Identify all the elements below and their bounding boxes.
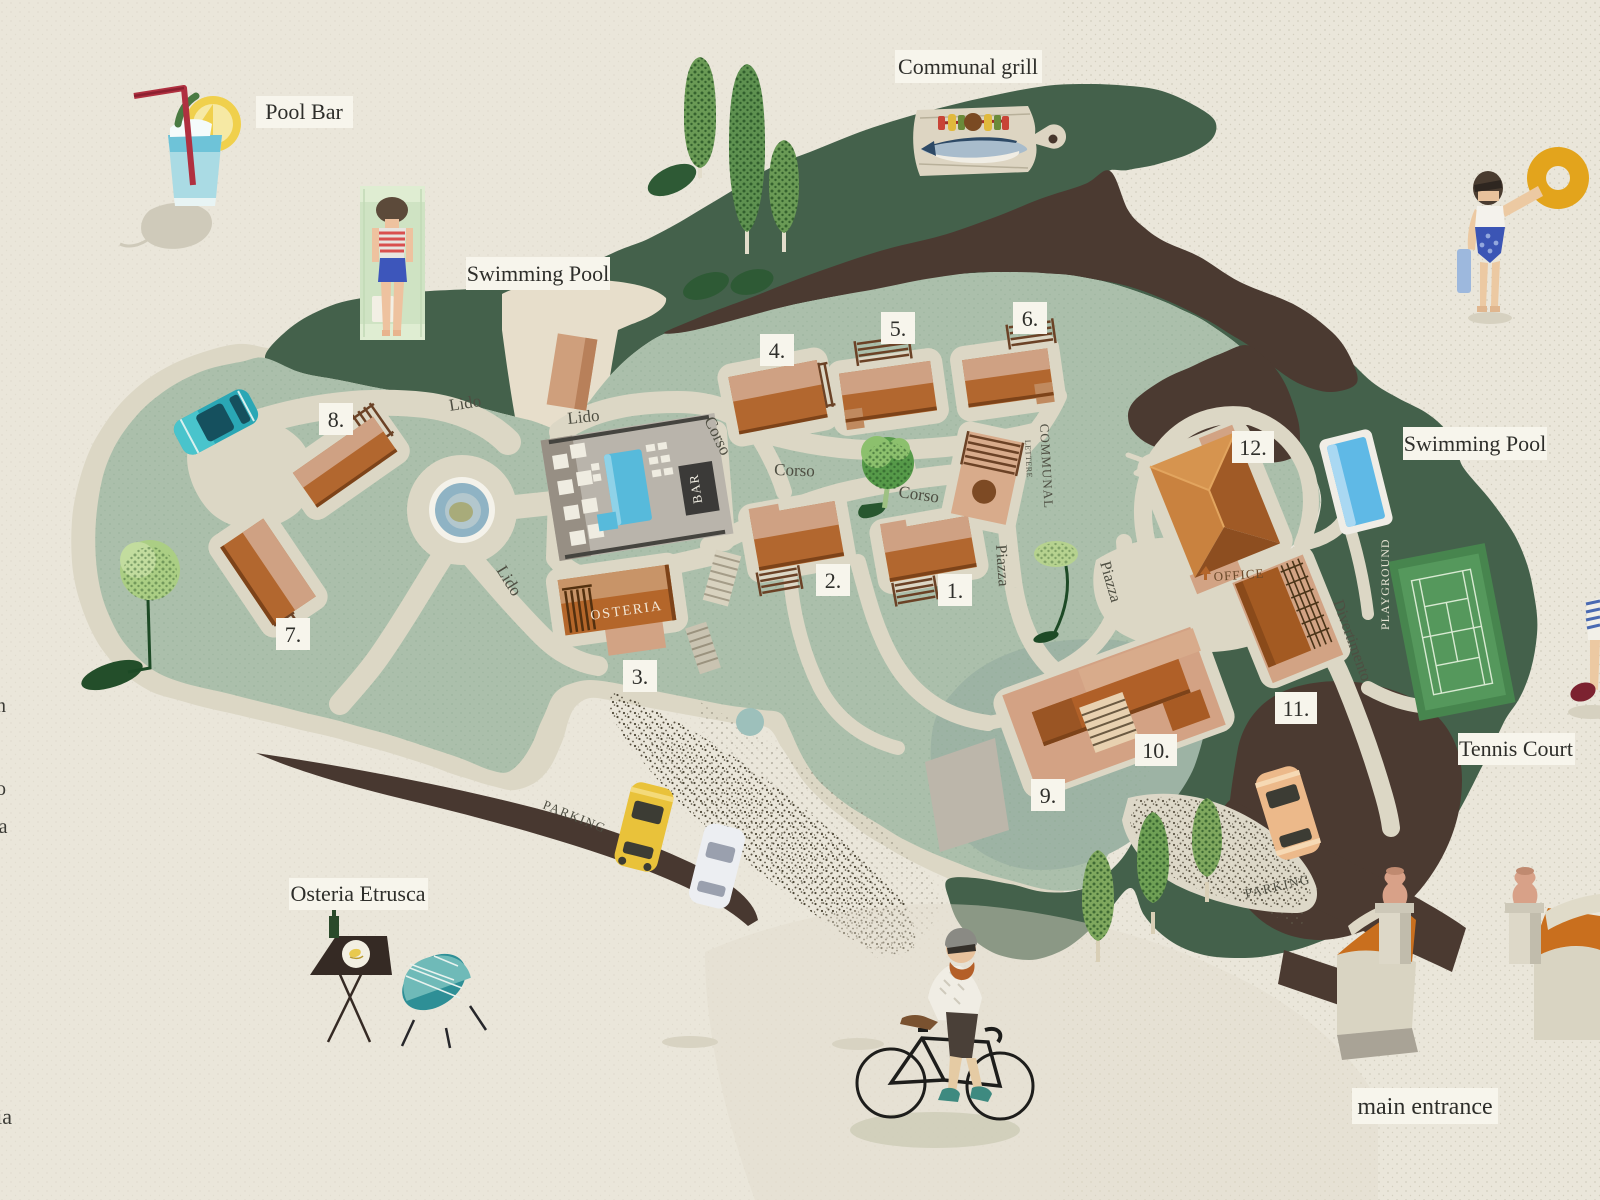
svg-text:Tennis Court: Tennis Court: [1459, 736, 1573, 761]
svg-text:5.: 5.: [890, 316, 907, 341]
svg-text:2.: 2.: [825, 568, 842, 593]
svg-text:Osteria Etrusca: Osteria Etrusca: [291, 881, 426, 906]
svg-text:Swimming Pool: Swimming Pool: [1404, 431, 1546, 456]
svg-text:12.: 12.: [1239, 435, 1267, 460]
svg-text:Corso: Corso: [774, 460, 815, 480]
svg-text:o: o: [0, 778, 6, 800]
svg-text:lia: lia: [0, 1104, 12, 1129]
svg-text:4.: 4.: [769, 338, 786, 363]
svg-text:Piazza: Piazza: [992, 544, 1012, 587]
svg-text:PLAYGROUND: PLAYGROUND: [1378, 538, 1392, 630]
svg-text:Communal grill: Communal grill: [898, 54, 1038, 79]
svg-text:main entrance: main entrance: [1357, 1094, 1492, 1120]
svg-text:1.: 1.: [947, 578, 964, 603]
svg-text:6.: 6.: [1022, 306, 1039, 331]
svg-text:7.: 7.: [285, 622, 302, 647]
svg-text:n: n: [0, 695, 6, 717]
svg-text:8.: 8.: [328, 407, 345, 432]
svg-text:ra: ra: [0, 816, 8, 838]
svg-text:Lido: Lido: [566, 406, 600, 428]
svg-text:10.: 10.: [1142, 738, 1170, 763]
svg-text:Pool Bar: Pool Bar: [265, 99, 343, 124]
svg-text:Swimming Pool: Swimming Pool: [467, 261, 609, 286]
svg-text:3.: 3.: [632, 664, 649, 689]
svg-text:11.: 11.: [1283, 696, 1310, 721]
svg-text:9.: 9.: [1040, 783, 1057, 808]
